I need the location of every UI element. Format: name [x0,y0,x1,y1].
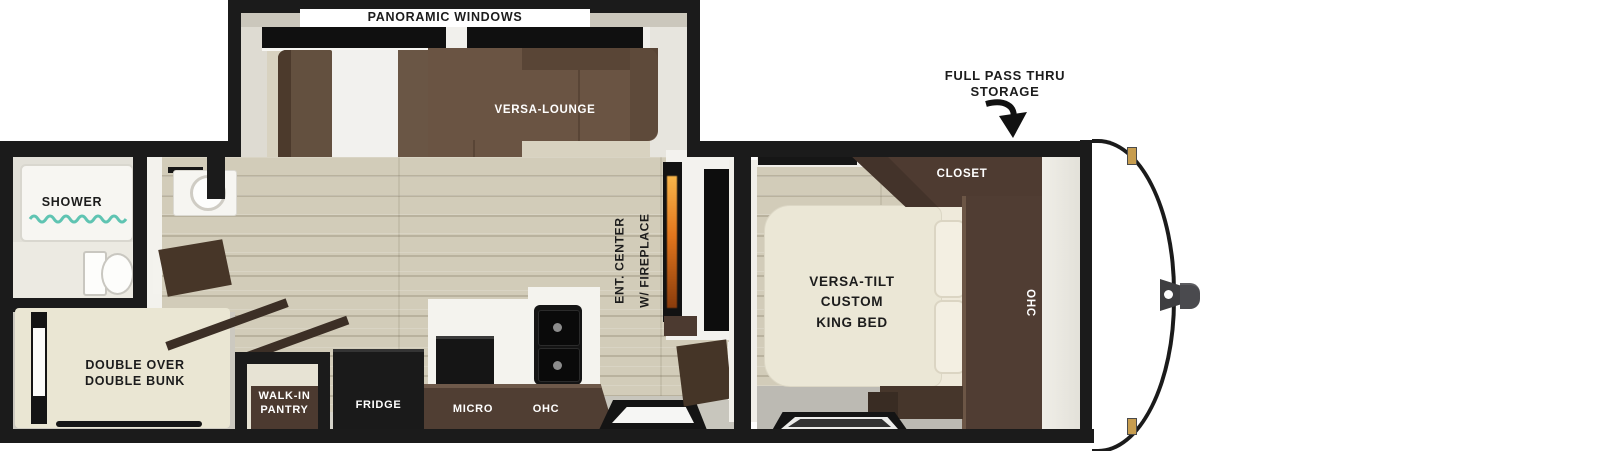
closet-label: CLOSET [920,167,1004,181]
cooktop [436,336,494,388]
cap-marker-bottom [1127,418,1137,435]
sink-drain-bottom [553,361,562,370]
cap-marker-top [1127,147,1137,165]
floorplan: VERSA-LOUNGE PANORAMIC WINDOWS SHOWER DO… [0,0,1600,451]
full-pass-thru-arrow [970,96,1032,144]
slideout-wall-right [687,0,700,158]
cabinet-small-box [664,316,697,336]
toilet-bowl [101,253,134,295]
bathroom-wall-right [133,148,147,312]
panoramic-window-left [262,27,446,48]
bedroom-wall-left [734,143,751,442]
wall-stub-vanity [207,157,225,199]
bunk-window [33,328,45,396]
bunk-base-line [56,421,202,427]
ent-center-label: ENT. CENTER W/ FIREPLACE [608,191,663,331]
top-wall-left [0,141,241,157]
double-bunk-label: DOUBLE OVER DOUBLE BUNK [45,358,225,389]
bottom-wall [0,429,1094,443]
sink-drain-top [553,323,562,332]
kitchen-ohc-label: OHC [516,403,576,417]
slideout-wall-left [228,0,241,158]
bedroom-wall-trim [751,160,757,422]
king-bed-label: VERSA-TILT CUSTOM KING BED [772,272,932,333]
hitch-hole [1164,290,1173,299]
pass-thru-wall [1042,157,1080,430]
panoramic-window-right [467,27,643,48]
walk-in-pantry-label: WALK-IN PANTRY [249,390,320,418]
shower-label: SHOWER [22,195,122,211]
bedroom-step [788,419,891,427]
fridge [333,349,424,432]
fridge-label: FRIDGE [333,399,424,413]
pantry-wall-top [235,352,330,364]
fireplace-flame [667,176,677,308]
micro-label: MICRO [433,403,513,417]
rear-wall [0,141,13,443]
bedroom-ohc-label: OHC [1006,273,1036,333]
hitch-coupler [1180,283,1200,309]
sofa-arm-right [630,48,658,141]
versa-lounge-label: VERSA-LOUNGE [467,103,623,117]
panoramic-windows-label: PANORAMIC WINDOWS [300,9,590,27]
flip-desk-bracket [153,250,160,294]
